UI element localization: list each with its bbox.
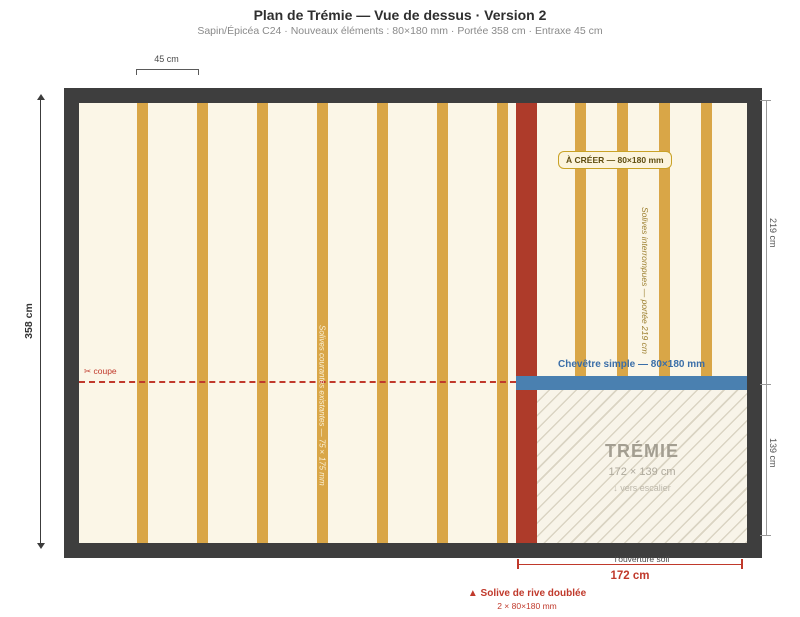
dim-right-tick	[760, 100, 771, 101]
dim-entraxe-label: 45 cm	[136, 54, 197, 64]
joist	[197, 103, 208, 543]
wall-frame: ✂ coupe Solives interrompues — portée 21…	[64, 88, 762, 558]
ouverture-note: l'ouverture soll	[537, 554, 747, 564]
dim-right-top-label: 219 cm	[768, 218, 778, 248]
chevetre-label: Chevêtre simple — 80×180 mm	[516, 359, 747, 370]
floor-interior: ✂ coupe Solives interrompues — portée 21…	[79, 103, 747, 543]
joist	[137, 103, 148, 543]
dim-right-tick	[760, 535, 771, 536]
dim-bottom-tick	[517, 559, 519, 569]
joist-interrupted	[701, 103, 712, 376]
dim-left-arrow-down-icon	[37, 543, 45, 549]
dim-left-arrow-up-icon	[37, 94, 45, 100]
doubled-rim-joist	[516, 103, 537, 543]
joist-interrupted	[617, 103, 628, 376]
joist	[437, 103, 448, 543]
tremie-direction: ↓ vers escalier	[613, 483, 671, 493]
solives-courantes-label: Solives courantes existantes — 75×175 mm	[315, 310, 329, 500]
joist-interrupted	[575, 103, 586, 376]
tremie-opening: TRÉMIE 172 × 139 cm ↓ vers escalier	[537, 390, 747, 543]
dim-left-label: 358 cm	[23, 300, 35, 342]
tremie-size: 172 × 139 cm	[609, 466, 676, 478]
joist	[497, 103, 508, 543]
dim-right-line	[766, 100, 767, 535]
page-title: Plan de Trémie — Vue de dessus · Version…	[0, 7, 800, 23]
page-subtitle: Sapin/Épicéa C24 · Nouveaux éléments : 8…	[0, 25, 800, 37]
chevetre-beam	[516, 376, 747, 390]
dim-bottom-line	[517, 564, 743, 565]
joist	[377, 103, 388, 543]
plan-tremie-diagram: Plan de Trémie — Vue de dessus · Version…	[0, 0, 800, 617]
a-creer-chip: À CRÉER — 80×180 mm	[558, 151, 672, 169]
coupe-label: ✂ coupe	[84, 366, 117, 377]
rive-doublee-title: ▲ Solive de rive doublée	[427, 588, 627, 599]
joist-interrupted	[659, 103, 670, 376]
rive-doublee-sub: 2 × 80×180 mm	[427, 601, 627, 611]
dim-right-bottom-label: 139 cm	[768, 438, 778, 468]
joist	[257, 103, 268, 543]
dim-entraxe-bracket	[136, 69, 199, 75]
tremie-title: TRÉMIE	[605, 441, 679, 462]
dim-bottom-label: 172 cm	[517, 570, 743, 582]
dim-left-line	[40, 98, 41, 545]
coupe-dashed-line	[79, 381, 516, 383]
dim-right-tick	[760, 384, 771, 385]
